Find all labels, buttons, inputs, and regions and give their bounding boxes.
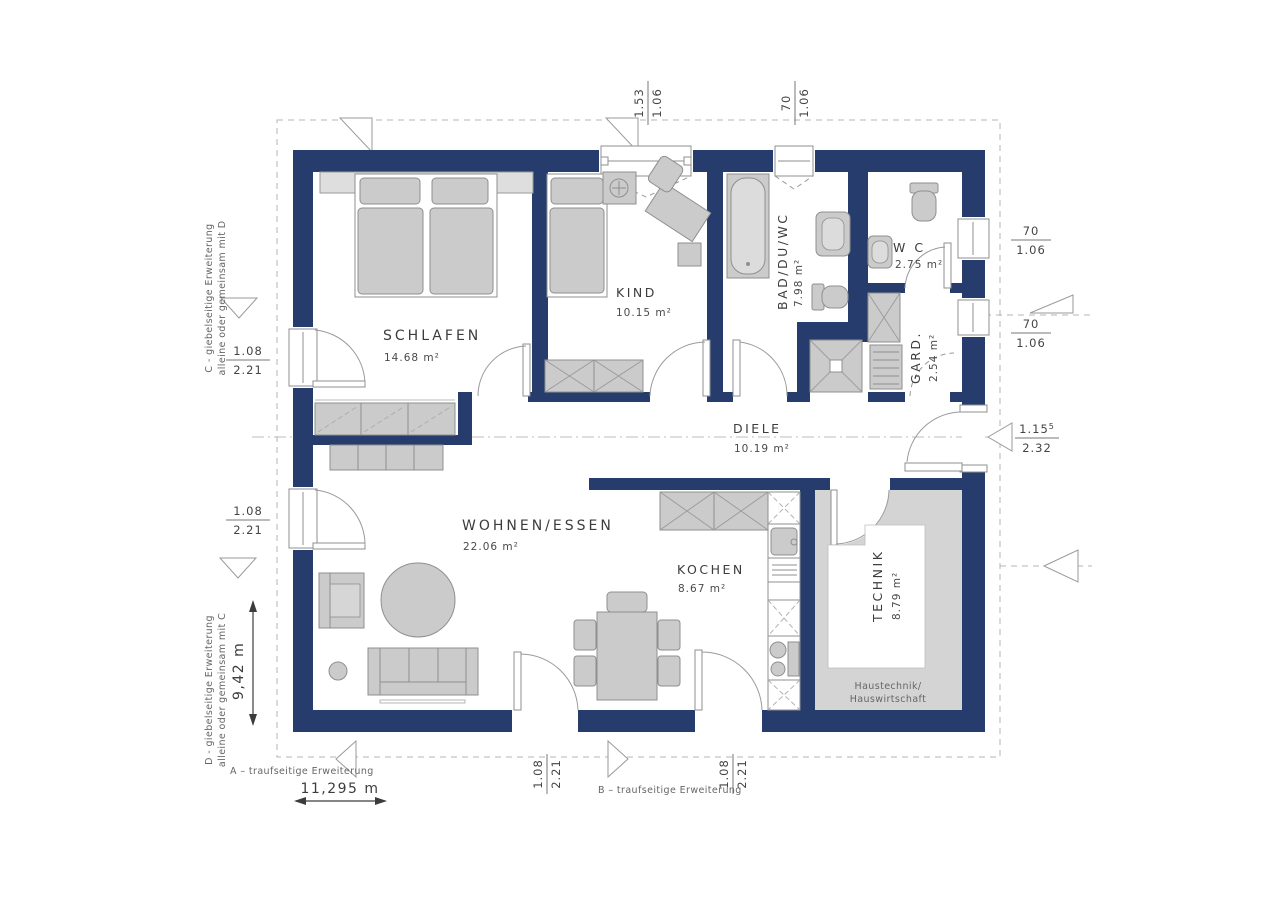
door-terrace-2 — [695, 650, 762, 710]
shoe-rack — [870, 345, 902, 389]
svg-text:70: 70 — [1023, 224, 1040, 238]
room-label-kochen: KOCHEN — [677, 562, 745, 577]
room-label-diele: DIELE — [733, 421, 782, 436]
annotation-c-line1: C - giebelseitige Erweiterung — [204, 223, 215, 372]
marker-triangle-left-lower — [220, 558, 256, 578]
marker-triangle-top-left — [340, 118, 372, 152]
floor-plan-page: SCHLAFEN 14.68 m² KIND 10.15 m² BAD/DU/W… — [0, 0, 1280, 906]
window-gard — [958, 298, 989, 337]
technik-note-1: Haustechnik/ — [855, 681, 922, 692]
sofa — [368, 648, 478, 703]
svg-text:2.21: 2.21 — [549, 759, 563, 789]
room-area-gard: 2.54 m² — [928, 334, 940, 382]
kind-furniture — [545, 154, 723, 392]
svg-text:11,295 m: 11,295 m — [300, 781, 379, 797]
wohnen-furniture — [319, 563, 680, 703]
dim-left-2: 1.08 2.21 — [226, 504, 270, 537]
room-area-schlafen: 14.68 m² — [384, 352, 440, 364]
washbasin — [816, 212, 850, 256]
technik-note-2: Hauswirtschaft — [850, 694, 927, 705]
svg-text:1.06: 1.06 — [797, 88, 811, 118]
annotation-b: B – traufseitige Erweiterung — [598, 785, 742, 796]
room-area-technik: 8.79 m² — [891, 572, 903, 620]
svg-text:9,42 m: 9,42 m — [231, 642, 247, 700]
door-entrance — [905, 405, 987, 472]
room-label-wc: W C — [893, 240, 926, 255]
annotation-a: A – traufseitige Erweiterung — [230, 766, 374, 777]
room-label-bad: BAD/DU/WC — [775, 212, 790, 310]
svg-text:1.155: 1.155 — [1019, 422, 1055, 436]
dim-top-2: 70 1.06 — [779, 81, 811, 125]
technik-furniture — [815, 490, 962, 710]
window-wohnen — [289, 487, 365, 550]
marker-triangle-bottom-mid — [608, 741, 628, 777]
dresser — [545, 360, 643, 392]
room-area-kochen: 8.67 m² — [678, 583, 726, 595]
annotation-c-line2: alleine oder gemeinsam mit D — [217, 221, 228, 376]
toilet-bad — [812, 284, 848, 310]
room-label-technik: TECHNIK — [870, 550, 885, 623]
door-bad — [733, 340, 787, 396]
toilet-wc — [910, 183, 938, 221]
svg-text:1.53: 1.53 — [632, 88, 646, 118]
svg-text:2.21: 2.21 — [233, 363, 263, 377]
svg-text:1.06: 1.06 — [1016, 336, 1046, 350]
chair — [658, 620, 680, 650]
svg-text:1.06: 1.06 — [1016, 243, 1046, 257]
room-label-wohnen: WOHNEN/ESSEN — [462, 518, 614, 534]
height-measure: 9,42 m — [231, 600, 257, 726]
door-terrace-1 — [514, 652, 578, 710]
svg-text:1.08: 1.08 — [233, 344, 263, 358]
annotation-d-line1: D - giebelseitige Erweiterung — [204, 615, 215, 765]
bathtub — [727, 174, 769, 278]
tall-cabinets — [660, 492, 768, 530]
dim-right-2: 70 1.06 — [1011, 317, 1051, 350]
dim-top-1: 1.53 1.06 — [632, 81, 664, 125]
door-schlafen — [478, 344, 530, 396]
kitchen-sink — [771, 528, 797, 555]
room-label-gard: GARD. — [908, 331, 923, 384]
dining-set — [574, 592, 680, 700]
pillow — [432, 178, 488, 204]
shower — [810, 340, 862, 392]
annotation-d-line2: alleine oder gemeinsam mit C — [217, 613, 228, 767]
svg-text:2.32: 2.32 — [1022, 441, 1052, 455]
room-label-kind: KIND — [616, 285, 657, 300]
side-stool — [329, 662, 347, 680]
room-area-wc: 2.75 m² — [895, 259, 943, 271]
room-label-schlafen: SCHLAFEN — [383, 328, 481, 344]
chair — [607, 592, 647, 612]
marker-triangle-right-lower — [1044, 550, 1078, 582]
svg-text:70: 70 — [779, 95, 793, 112]
window-bad — [773, 146, 815, 189]
svg-text:1.08: 1.08 — [233, 504, 263, 518]
built-in-wardrobe — [315, 400, 455, 435]
chair — [574, 620, 596, 650]
room-area-wohnen: 22.06 m² — [463, 541, 519, 553]
width-measure: 11,295 m — [294, 781, 387, 805]
room-area-diele: 10.19 m² — [734, 443, 790, 455]
marker-triangle-right-upper — [1030, 295, 1073, 313]
svg-text:2.21: 2.21 — [233, 523, 263, 537]
room-area-bad: 7.98 m² — [793, 259, 805, 307]
sideboard — [330, 445, 443, 470]
stool — [678, 243, 701, 266]
round-table — [381, 563, 455, 637]
door-kind — [650, 340, 710, 396]
svg-text:70: 70 — [1023, 317, 1040, 331]
kitchen-furniture — [660, 492, 800, 710]
dim-left-1: 1.08 2.21 — [226, 344, 270, 377]
window-wc — [958, 217, 989, 260]
room-area-kind: 10.15 m² — [616, 307, 672, 319]
chair — [574, 656, 596, 686]
gard-furniture — [870, 345, 902, 389]
svg-text:1.06: 1.06 — [650, 88, 664, 118]
dim-entrance: 1.155 2.32 — [1015, 422, 1059, 455]
window-schlafen — [289, 327, 365, 388]
duvet — [430, 208, 493, 294]
dim-right-1: 70 1.06 — [1011, 224, 1051, 257]
chair — [658, 656, 680, 686]
washbasin-wc — [868, 236, 892, 268]
svg-text:1.08: 1.08 — [531, 759, 545, 789]
kitchen-counter — [768, 492, 800, 710]
floor-plan-drawing: SCHLAFEN 14.68 m² KIND 10.15 m² BAD/DU/W… — [0, 0, 1280, 906]
duct-shaft — [868, 293, 900, 342]
pillow — [360, 178, 420, 204]
pillow — [551, 178, 603, 204]
armchair — [319, 573, 364, 628]
duvet — [550, 208, 604, 293]
dim-bottom-1: 1.08 2.21 — [531, 754, 563, 794]
duvet — [358, 208, 423, 294]
schlafen-furniture — [315, 172, 533, 435]
dining-table — [597, 612, 657, 700]
